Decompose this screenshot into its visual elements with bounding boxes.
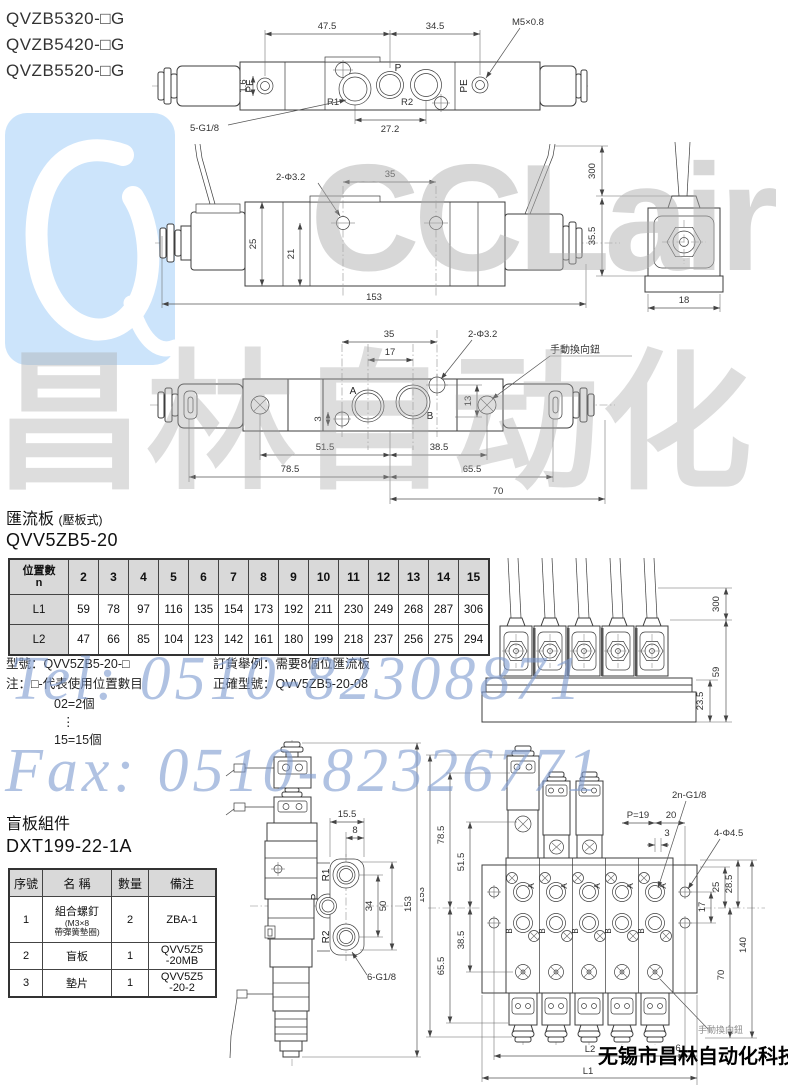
dim-label: L2 <box>585 1044 596 1055</box>
dim-label: 35 <box>384 329 395 340</box>
table-header-cell: 6 <box>189 559 219 595</box>
dim-label: 78.5 <box>281 464 300 475</box>
model-number: QVZB5520-□G <box>6 58 125 84</box>
ordering-notes-right: 訂貨舉例：需要8個位匯流板 正確型號：QVV5ZB5-20-08 <box>213 654 370 694</box>
solenoid-unit <box>500 558 532 676</box>
port-label: P <box>310 893 321 900</box>
table-cell: 1 <box>9 897 43 943</box>
ordering-notes-left: 型號：QVV5ZB5-20-□ 注：□-代表使用位置數目 02=2個 ⋮ 15=… <box>6 654 143 750</box>
note-line: 注：□-代表使用位置數目 <box>6 674 143 694</box>
table-row: 3 墊片 1 QVV5Z5 -20-2 <box>9 970 216 997</box>
table-cell: 173 <box>249 595 279 625</box>
solenoid-unit <box>602 558 634 676</box>
port-label: PE <box>459 79 470 93</box>
table-header-cell: 數量 <box>112 869 149 897</box>
company-name-overlay: 无锡市昌林自动化科技 <box>598 1040 788 1069</box>
dim-label: 51.5 <box>316 442 335 453</box>
dim-label: 38.5 <box>430 442 449 453</box>
solenoid-unit <box>534 558 566 676</box>
table-header-cell: 11 <box>339 559 369 595</box>
table-cell: 59 <box>69 595 99 625</box>
table-cell: 2 <box>112 897 149 943</box>
table-header-cell: 9 <box>279 559 309 595</box>
row-label: L1 <box>9 595 69 625</box>
table-row-l1: L1 59 78 97 116 135 154 173 192 211 230 … <box>9 595 489 625</box>
table-cell: 256 <box>399 625 429 656</box>
port-label: R2 <box>321 930 332 943</box>
dim-label: 3 <box>664 828 669 839</box>
table-cell: 墊片 <box>43 970 112 997</box>
dim-label: 13 <box>463 396 474 407</box>
drawing-valve-side-assembly: R1 P R2 15.5 8 34 50 153 6-G1/8 <box>225 736 435 1081</box>
dim-label: 17 <box>385 347 396 358</box>
dim-label: 8 <box>352 825 357 836</box>
dim-label: 23.5 <box>695 692 706 711</box>
dim-label: P=19 <box>627 810 649 821</box>
table-cell: 97 <box>129 595 159 625</box>
model-code-line: 型號：QVV5ZB5-20-□ <box>6 654 143 674</box>
port-callout: 6-G1/8 <box>367 972 396 983</box>
dim-label: 78.5 <box>436 826 447 845</box>
catalog-page: { "models": ["QVZB5320-□G", "QVZB5420-□G… <box>0 0 788 1092</box>
dim-label: 1.6 <box>238 79 249 92</box>
table-cell: ZBA-1 <box>149 897 217 943</box>
dim-label: 35.5 <box>587 227 598 246</box>
blind-plate-parts-table: 序號 名 稱 數量 備注 1 組合螺釘(M3×8 帶彈簧墊圈) 2 ZBA-1 … <box>8 868 217 998</box>
table-header-cell: 14 <box>429 559 459 595</box>
table-cell: 161 <box>249 625 279 656</box>
r2-port <box>411 70 442 101</box>
right-solenoid <box>505 214 563 270</box>
dim-label: 38.5 <box>456 931 467 950</box>
table-cell: 盲板 <box>43 943 112 970</box>
order-example-line: 訂貨舉例：需要8個位匯流板 <box>213 654 370 674</box>
table-cell: 66 <box>99 625 129 656</box>
dim-label: 50 <box>378 901 389 912</box>
section-title: 匯流板 <box>6 511 54 528</box>
dim-label: 65.5 <box>463 464 482 475</box>
table-header-row: 序號 名 稱 數量 備注 <box>9 869 216 897</box>
dim-label: 20 <box>666 810 677 821</box>
example-min: 02=2個 <box>54 694 143 714</box>
table-cell: 154 <box>219 595 249 625</box>
blind-plate-section-title: 盲板組件 <box>6 810 70 834</box>
model-number: QVZB5320-□G <box>6 6 125 32</box>
table-cell: QVV5Z5 -20MB <box>149 943 217 970</box>
dim-label: 25 <box>248 239 259 250</box>
ellipsis: ⋮ <box>62 714 143 730</box>
table-cell: QVV5Z5 -20-2 <box>149 970 217 997</box>
port-label: R2 <box>401 97 413 108</box>
table-header-cell: 位置數n <box>9 559 69 595</box>
drawing-bottom-view: A B 35 17 2-Φ3.2 手動換向鈕 3 13 51.5 38.5 78… <box>100 322 660 504</box>
table-row-l2: L2 47 66 85 104 123 142 161 180 199 218 … <box>9 625 489 656</box>
left-solenoid <box>191 212 245 270</box>
port-label: B <box>427 411 434 422</box>
table-cell: 1 <box>112 943 149 970</box>
port-callout: 5-G1/8 <box>190 123 219 134</box>
section-manifold-title: 匯流板 (壓板式) <box>6 505 102 529</box>
table-header-cell: 8 <box>249 559 279 595</box>
table-cell: 2 <box>9 943 43 970</box>
table-cell: 230 <box>339 595 369 625</box>
manifold-base <box>482 692 696 722</box>
dim-label: 153 <box>403 896 414 912</box>
manual-override-callout: 手動換向鈕 <box>698 1024 743 1035</box>
table-header-cell: 12 <box>369 559 399 595</box>
dim-label: 15.5 <box>338 809 357 820</box>
table-cell: 47 <box>69 625 99 656</box>
table-cell: 275 <box>429 625 459 656</box>
table-cell: 組合螺釘(M3×8 帶彈簧墊圈) <box>43 897 112 943</box>
table-cell: 192 <box>279 595 309 625</box>
table-header-cell: 2 <box>69 559 99 595</box>
drawing-top-port-view: PE R1 P R2 PE 47.5 34.5 M5×0.8 1.6 5-G1/… <box>150 8 590 138</box>
hole-callout: 2-Φ3.2 <box>468 329 497 340</box>
dim-label: 3 <box>313 416 324 421</box>
table-cell: 3 <box>9 970 43 997</box>
table-row: 2 盲板 1 QVV5Z5 -20MB <box>9 943 216 970</box>
drawing-manifold-assembly: A B <box>420 740 788 1090</box>
port-label: P <box>395 63 402 74</box>
port-callout: 2n-G1/8 <box>672 790 706 801</box>
dim-label: 70 <box>716 970 727 981</box>
table-cell: 116 <box>159 595 189 625</box>
dim-label: 47.5 <box>318 21 337 32</box>
table-cell: 142 <box>219 625 249 656</box>
table-cell: 268 <box>399 595 429 625</box>
table-cell: 123 <box>189 625 219 656</box>
manifold-model: QVV5ZB5-20 <box>6 530 118 551</box>
dim-label: 35 <box>385 169 396 180</box>
table-cell: 180 <box>279 625 309 656</box>
model-number: QVZB5420-□G <box>6 32 125 58</box>
table-cell: 218 <box>339 625 369 656</box>
table-cell: 104 <box>159 625 189 656</box>
drawing-front-view: 2-Φ3.2 35 25 21 153 300 35.5 18 <box>150 136 788 328</box>
p-port <box>377 72 404 99</box>
dim-label: L1 <box>583 1066 594 1077</box>
dim-label: 28.5 <box>724 875 735 894</box>
table-cell: 199 <box>309 625 339 656</box>
table-header-row: 位置數n 2 3 4 5 6 7 8 9 10 11 12 13 14 15 <box>9 559 489 595</box>
dim-label: 65.5 <box>436 957 447 976</box>
port-label: R1 <box>321 868 332 881</box>
section-subtitle: (壓板式) <box>58 513 102 527</box>
dim-label: 18 <box>679 295 690 306</box>
table-header-cell: 備注 <box>149 869 217 897</box>
dim-label: 300 <box>587 163 598 179</box>
pe-port-left <box>257 78 273 94</box>
table-header-cell: 10 <box>309 559 339 595</box>
solenoid-unit <box>636 558 668 676</box>
table-header-cell: 名 稱 <box>43 869 112 897</box>
dim-label: 153 <box>420 887 427 903</box>
table-header-cell: 5 <box>159 559 189 595</box>
table-cell: 85 <box>129 625 159 656</box>
table-header-cell: 4 <box>129 559 159 595</box>
dim-label: 17 <box>697 902 708 913</box>
table-cell: 1 <box>112 970 149 997</box>
correct-model-line: 正確型號：QVV5ZB5-20-08 <box>213 674 370 694</box>
dim-label: 59 <box>711 667 722 678</box>
table-cell: 249 <box>369 595 399 625</box>
dim-label: 34 <box>364 901 375 912</box>
dim-label: 300 <box>711 596 722 612</box>
table-header-cell: 7 <box>219 559 249 595</box>
row-label: L2 <box>9 625 69 656</box>
position-length-table: 位置數n 2 3 4 5 6 7 8 9 10 11 12 13 14 15 L… <box>8 558 490 656</box>
model-number-list: QVZB5320-□G QVZB5420-□G QVZB5520-□G <box>6 6 125 84</box>
hole-callout: 4-Φ4.5 <box>714 828 743 839</box>
solenoid-unit <box>568 558 600 676</box>
dim-label: 140 <box>738 937 749 953</box>
table-cell: 237 <box>369 625 399 656</box>
drawing-manifold-end-view: 300 59 23.5 <box>478 552 778 737</box>
manual-override-callout: 手動換向鈕 <box>550 343 600 356</box>
pe-port-right <box>472 77 488 93</box>
dim-label: 51.5 <box>456 853 467 872</box>
blind-plate-model: DXT199-22-1A <box>6 836 132 857</box>
table-header-cell: 3 <box>99 559 129 595</box>
table-cell: 211 <box>309 595 339 625</box>
table-cell: 78 <box>99 595 129 625</box>
hole-callout: 2-Φ3.2 <box>276 172 305 183</box>
table-header-cell: 13 <box>399 559 429 595</box>
left-solenoid-body <box>177 66 240 106</box>
port-label: A <box>350 386 357 397</box>
dim-label: 153 <box>366 292 382 303</box>
dim-label: 70 <box>493 486 504 497</box>
right-solenoid-body <box>540 66 576 106</box>
dim-label: 25 <box>711 882 722 893</box>
valve-body <box>245 202 505 286</box>
table-cell: 135 <box>189 595 219 625</box>
table-header-cell: 序號 <box>9 869 43 897</box>
dim-label: 27.2 <box>381 124 400 135</box>
table-row: 1 組合螺釘(M3×8 帶彈簧墊圈) 2 ZBA-1 <box>9 897 216 943</box>
example-max: 15=15個 <box>54 730 143 750</box>
thread-callout: M5×0.8 <box>512 17 544 28</box>
table-cell: 287 <box>429 595 459 625</box>
valve-body <box>265 841 317 899</box>
dim-label: 34.5 <box>426 21 445 32</box>
dim-label: 21 <box>286 249 297 260</box>
